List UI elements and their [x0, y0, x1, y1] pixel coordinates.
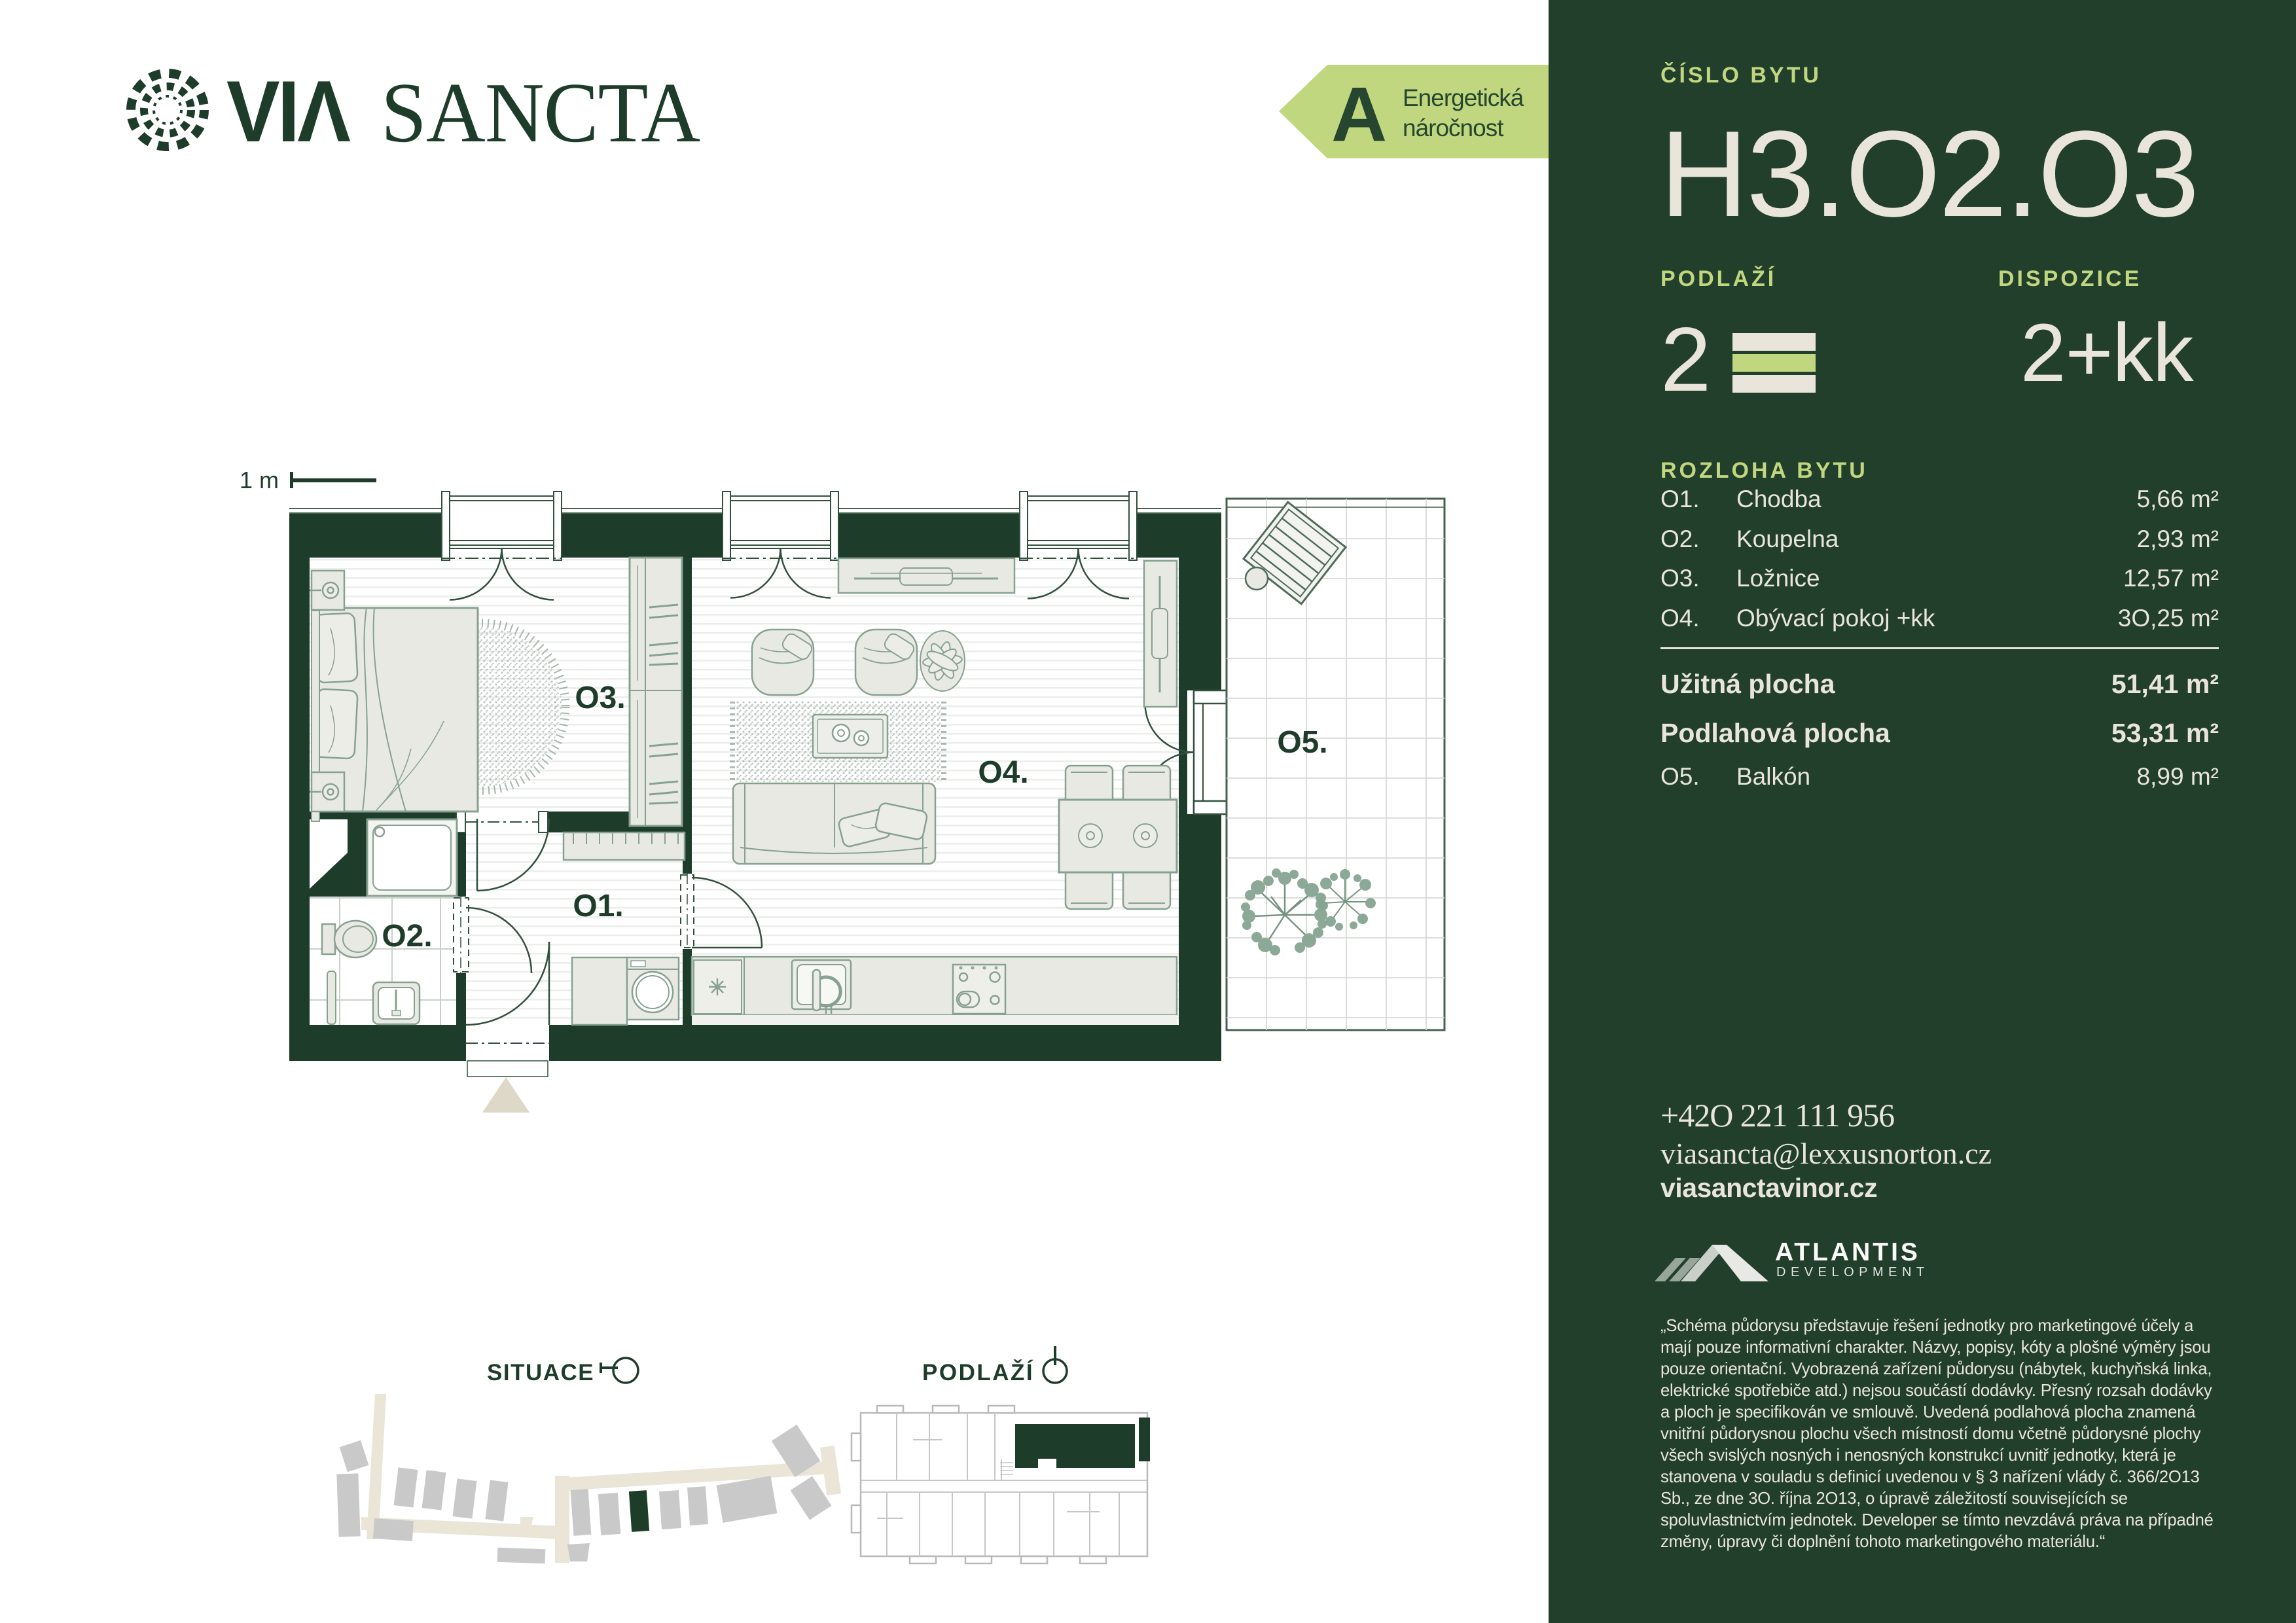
- svg-text:Energetická: Energetická: [1403, 84, 1524, 111]
- svg-text:SANCTA: SANCTA: [381, 65, 700, 160]
- svg-text:1 m: 1 m: [240, 467, 279, 493]
- svg-text:O1.: O1.: [573, 889, 623, 923]
- svg-text:O4.: O4.: [978, 755, 1028, 790]
- svg-text:náročnost: náročnost: [1403, 115, 1504, 141]
- svg-text:SITUACE: SITUACE: [487, 1360, 594, 1385]
- svg-text:O5.: O5.: [1277, 725, 1327, 760]
- svg-text:O3.: O3.: [575, 681, 625, 715]
- svg-text:PODLAŽÍ: PODLAŽÍ: [922, 1359, 1034, 1385]
- svg-text:O2.: O2.: [382, 919, 432, 954]
- svg-text:A: A: [1331, 71, 1387, 158]
- svg-text:VIΛ: VIΛ: [226, 63, 351, 160]
